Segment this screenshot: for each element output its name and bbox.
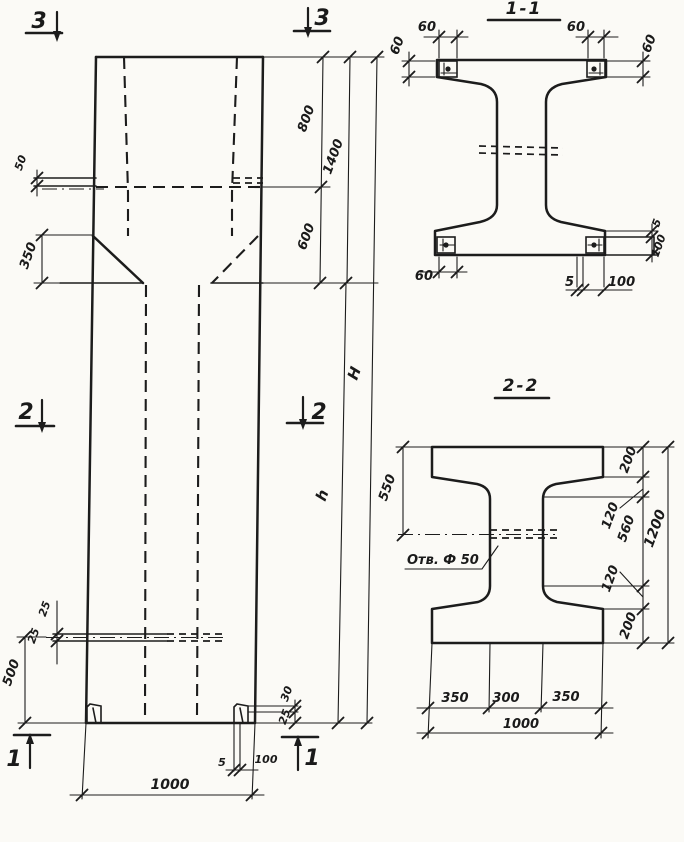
dim-1-1-tl-w: 60	[418, 20, 436, 35]
section-2-2-dim-lines	[396, 442, 674, 739]
technical-drawing: 50 350 800 600 1400 H h 25 25 500 30 25 …	[0, 0, 684, 842]
corner-plates	[437, 61, 658, 255]
dim-1-1-tl-h: 60	[388, 35, 408, 57]
elevation-view: 50 350 800 600 1400 H h 25 25 500 30 25 …	[0, 6, 384, 801]
section-1-1: 1-1	[388, 0, 669, 296]
dim-1-1-br-leg: 100	[608, 275, 635, 290]
dim-1-1-tr-w: 60	[567, 20, 585, 35]
dim-2-2-bot-200: 200	[617, 610, 640, 641]
mark-3-right-label: 3	[314, 6, 329, 31]
mark-1-left-label: 1	[6, 747, 21, 772]
mark-3-left-label: 3	[31, 9, 46, 34]
mark-2-right-label: 2	[311, 400, 326, 425]
section-mark-2-left: 2	[16, 400, 54, 433]
section-2-2: 2-2 Отв. Ф 50 550 2	[376, 376, 674, 739]
section-2-2-title: 2-2	[503, 376, 540, 396]
section-1-1-outline	[435, 60, 606, 255]
dim-2-2-1000: 1000	[503, 717, 539, 732]
section-mark-3-right: 3	[294, 6, 330, 38]
hidden-web-lines	[96, 57, 263, 716]
dim-taper-350: 350	[17, 240, 40, 271]
mark-2-left-label: 2	[18, 400, 33, 425]
dim-base-1000: 1000	[151, 777, 190, 793]
dim-2-2-top-200: 200	[617, 444, 640, 475]
drawing-sheet: 50 350 800 600 1400 H h 25 25 500 30 25 …	[0, 0, 684, 842]
dim-2-2-300: 300	[492, 691, 519, 706]
section-1-1-title: 1-1	[506, 0, 543, 19]
dim-1-1-br-t: 5	[565, 275, 574, 290]
section-mark-1-left: 1	[6, 733, 50, 772]
dim-hole-off-top: 25	[36, 599, 54, 618]
dim-600: 600	[295, 221, 318, 252]
dim-hole-off-bot: 25	[25, 626, 43, 645]
dim-2-2-1200: 1200	[641, 507, 669, 549]
dim-1400: 1400	[320, 137, 346, 176]
dim-1-1-bl-w: 60	[415, 269, 433, 284]
dim-H: H	[344, 364, 365, 382]
dim-2-2-550: 550	[376, 472, 399, 503]
dim-corner-30: 30	[278, 684, 296, 703]
hole-label: Отв. Ф 50	[407, 553, 479, 568]
dim-angle-leg: 100	[255, 753, 278, 766]
mark-1-right-label: 1	[304, 746, 319, 771]
dim-angle-t: 5	[218, 756, 226, 769]
section-2-2-hole: Отв. Ф 50	[398, 530, 560, 569]
console-ledge	[34, 178, 263, 189]
dim-2-2-350b: 350	[552, 690, 579, 705]
dim-console-step: 50	[12, 153, 30, 172]
section-1-1-hole-lines	[479, 146, 563, 155]
dim-1-1-tr-h: 60	[640, 33, 660, 55]
section-mark-2-right: 2	[287, 397, 327, 430]
dim-2-2-bot-120: 120	[599, 563, 622, 594]
dim-800: 800	[295, 103, 318, 134]
hole-lines	[46, 634, 226, 641]
section-mark-3-left: 3	[26, 9, 62, 42]
dim-h: h	[312, 487, 333, 503]
dim-2-2-560: 560	[615, 513, 638, 544]
dim-2-2-350a: 350	[441, 691, 468, 706]
dim-500: 500	[0, 657, 23, 688]
section-2-2-outline	[432, 447, 603, 643]
section-mark-1-right: 1	[282, 735, 320, 771]
